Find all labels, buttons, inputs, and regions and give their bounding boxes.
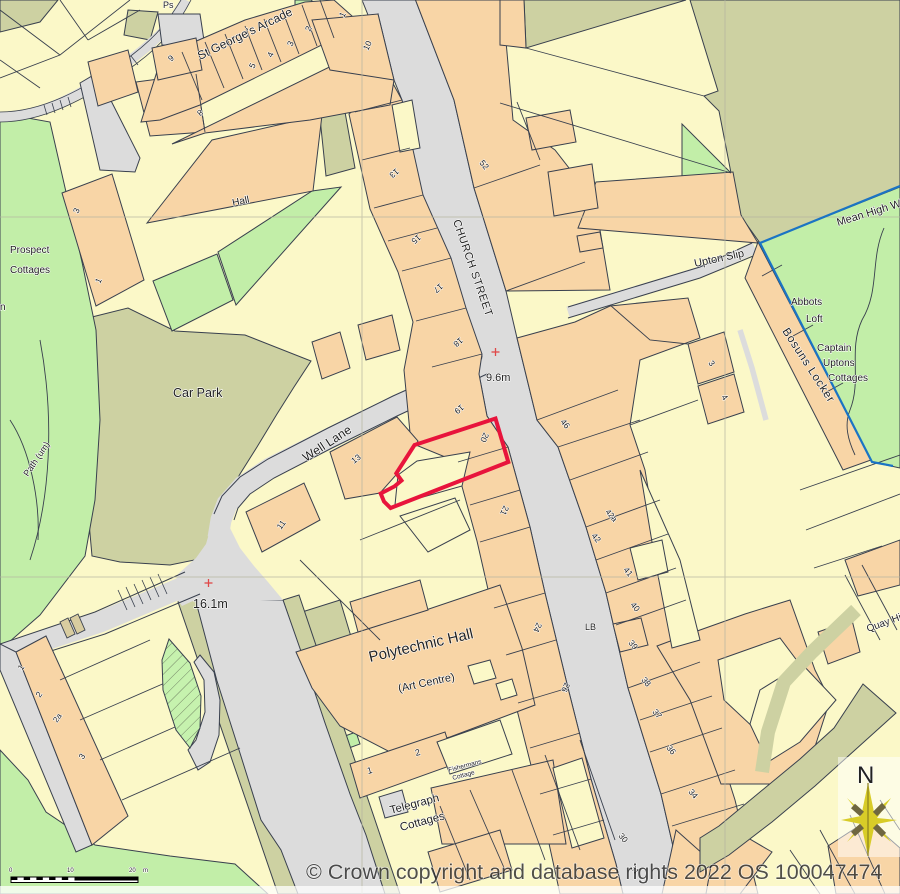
svg-text:Prospect: Prospect bbox=[10, 245, 50, 256]
svg-text:Loft: Loft bbox=[806, 314, 823, 325]
svg-text:© Crown copyright and database: © Crown copyright and database rights 20… bbox=[306, 860, 882, 884]
svg-text:20: 20 bbox=[129, 868, 136, 874]
svg-text:LB: LB bbox=[585, 622, 596, 632]
svg-text:Cottages: Cottages bbox=[10, 265, 50, 276]
svg-text:16.1m: 16.1m bbox=[193, 597, 228, 611]
svg-text:9.6m: 9.6m bbox=[486, 372, 510, 384]
svg-text:N: N bbox=[857, 762, 874, 789]
svg-text:Cottages: Cottages bbox=[828, 373, 868, 384]
svg-text:Abbots: Abbots bbox=[791, 297, 822, 308]
svg-text:Ps: Ps bbox=[163, 0, 174, 10]
svg-text:Uptons: Uptons bbox=[823, 358, 855, 369]
svg-text:n: n bbox=[0, 302, 6, 313]
svg-text:10: 10 bbox=[67, 868, 74, 874]
svg-text:Car Park: Car Park bbox=[173, 386, 223, 400]
svg-text:Captain: Captain bbox=[817, 343, 851, 354]
svg-text:m: m bbox=[143, 868, 148, 874]
